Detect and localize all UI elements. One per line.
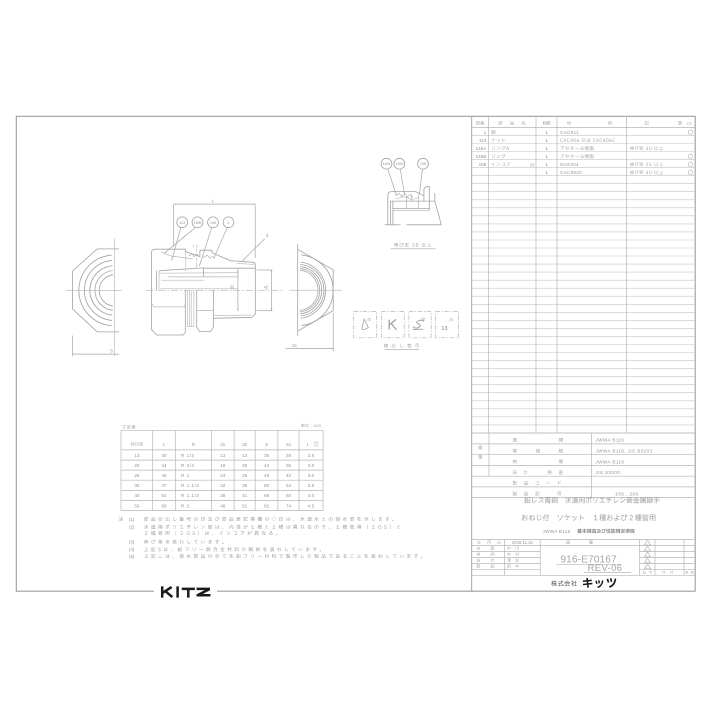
svg-text:d1: d1 xyxy=(263,284,268,289)
svg-text:R 1.1/4: R 1.1/4 xyxy=(181,483,199,488)
svg-text:25: 25 xyxy=(134,473,140,478)
svg-text:13: 13 xyxy=(134,453,140,458)
svg-text:S1: S1 xyxy=(292,343,298,348)
svg-text:R 1.1/2: R 1.1/2 xyxy=(181,493,199,498)
svg-text:1: 1 xyxy=(545,138,548,143)
svg-text:35: 35 xyxy=(264,453,270,458)
svg-text:13: 13 xyxy=(242,453,248,458)
svg-text:158: 158 xyxy=(479,162,487,167)
svg-text:(5): (5) xyxy=(129,554,135,559)
svg-text:1: 1 xyxy=(545,146,548,151)
svg-text:38: 38 xyxy=(220,493,226,498)
svg-text:60: 60 xyxy=(161,503,167,508)
svg-text:42: 42 xyxy=(286,473,292,478)
svg-text:68: 68 xyxy=(264,493,270,498)
svg-text:1: 1 xyxy=(545,130,548,135)
svg-text:(4): (4) xyxy=(129,547,135,552)
svg-text:R 2: R 2 xyxy=(181,503,190,508)
svg-text:20: 20 xyxy=(242,463,248,468)
svg-text:JWWA B116: JWWA B116 xyxy=(596,438,625,443)
svg-text:S: S xyxy=(110,348,113,353)
svg-text:51: 51 xyxy=(242,503,248,508)
svg-text:d2: d2 xyxy=(230,284,235,289)
svg-text:49: 49 xyxy=(264,473,270,478)
svg-text:3.5: 3.5 xyxy=(308,483,315,488)
svg-text:51: 51 xyxy=(161,493,167,498)
svg-text:1: 1 xyxy=(545,154,548,159)
svg-text:SUS304: SUS304 xyxy=(560,162,579,167)
svg-text:47: 47 xyxy=(161,483,167,488)
svg-text:(2): (2) xyxy=(530,163,535,167)
svg-text:d2: d2 xyxy=(242,442,247,447)
svg-text:(5): (5) xyxy=(367,317,371,321)
svg-text:R 3/4: R 3/4 xyxy=(181,463,194,468)
svg-text:S: S xyxy=(265,442,268,447)
svg-text:28: 28 xyxy=(286,453,292,458)
svg-text:19: 19 xyxy=(220,463,226,468)
svg-text:-0.5: -0.5 xyxy=(314,444,319,448)
svg-text:4.5: 4.5 xyxy=(308,503,315,508)
svg-text:35: 35 xyxy=(286,463,292,468)
svg-text:2018.11.16: 2018.11.16 xyxy=(512,540,533,545)
svg-text:REV-06: REV-06 xyxy=(588,562,623,573)
svg-text:JIS S3200: JIS S3200 xyxy=(596,470,621,475)
svg-text:26: 26 xyxy=(242,473,248,478)
svg-text:42: 42 xyxy=(264,463,270,468)
svg-text:30: 30 xyxy=(134,483,140,488)
svg-text:48: 48 xyxy=(220,503,226,508)
svg-text:158: 158 xyxy=(210,221,216,225)
svg-text:(1): (1) xyxy=(129,517,135,522)
svg-text:(2): (2) xyxy=(129,525,135,530)
svg-text:146A: 146A xyxy=(476,146,488,151)
svg-text:1: 1 xyxy=(545,162,548,167)
svg-text:CAC902C: CAC902C xyxy=(560,170,583,175)
svg-text:10S , 20S: 10S , 20S xyxy=(615,492,639,497)
svg-text:146B: 146B xyxy=(194,221,203,225)
svg-text:R 1: R 1 xyxy=(181,473,190,478)
svg-text:146A: 146A xyxy=(383,162,392,166)
svg-text:d1: d1 xyxy=(220,442,225,447)
svg-text:(1): (1) xyxy=(687,122,691,126)
svg-text:CAC911: CAC911 xyxy=(560,130,579,135)
svg-text:2.5: 2.5 xyxy=(308,453,315,458)
svg-text:113: 113 xyxy=(179,220,186,225)
svg-text:13: 13 xyxy=(220,453,226,458)
svg-text:146B: 146B xyxy=(395,162,404,166)
svg-text:60: 60 xyxy=(286,493,292,498)
svg-text:13: 13 xyxy=(441,326,447,332)
svg-text:JWWA B116: JWWA B116 xyxy=(596,459,625,464)
svg-text:41: 41 xyxy=(242,493,248,498)
svg-text:1: 1 xyxy=(545,170,548,175)
svg-text:60: 60 xyxy=(264,483,270,488)
svg-text:(4): (4) xyxy=(421,317,425,321)
svg-text:74: 74 xyxy=(286,503,292,508)
svg-text:(3): (3) xyxy=(129,540,135,545)
svg-text:R 1/2: R 1/2 xyxy=(181,453,194,458)
svg-text:44: 44 xyxy=(161,463,167,468)
svg-text:S1: S1 xyxy=(286,442,292,447)
svg-text:50: 50 xyxy=(134,503,140,508)
svg-text:35: 35 xyxy=(242,483,248,488)
svg-text:113: 113 xyxy=(479,138,487,143)
svg-text:46: 46 xyxy=(161,473,167,478)
svg-text:4.0: 4.0 xyxy=(308,493,315,498)
svg-text:JWWA B116, JIS B0203: JWWA B116, JIS B0203 xyxy=(596,449,653,454)
svg-text:40: 40 xyxy=(134,493,140,498)
svg-text:3.0: 3.0 xyxy=(308,473,315,478)
svg-text:24: 24 xyxy=(220,473,226,478)
svg-text:R: R xyxy=(192,442,195,447)
svg-text:1: 1 xyxy=(484,130,487,135)
svg-text:146B: 146B xyxy=(476,154,487,159)
svg-text:53: 53 xyxy=(286,483,292,488)
svg-text:3.0: 3.0 xyxy=(308,463,315,468)
svg-text:158: 158 xyxy=(420,162,426,166)
svg-text:82: 82 xyxy=(264,503,270,508)
svg-text:40: 40 xyxy=(161,453,167,458)
svg-text:32: 32 xyxy=(220,483,226,488)
svg-text:20: 20 xyxy=(134,463,140,468)
svg-text:(3): (3) xyxy=(449,317,453,321)
svg-text:JWWA B116: JWWA B116 xyxy=(543,529,571,534)
